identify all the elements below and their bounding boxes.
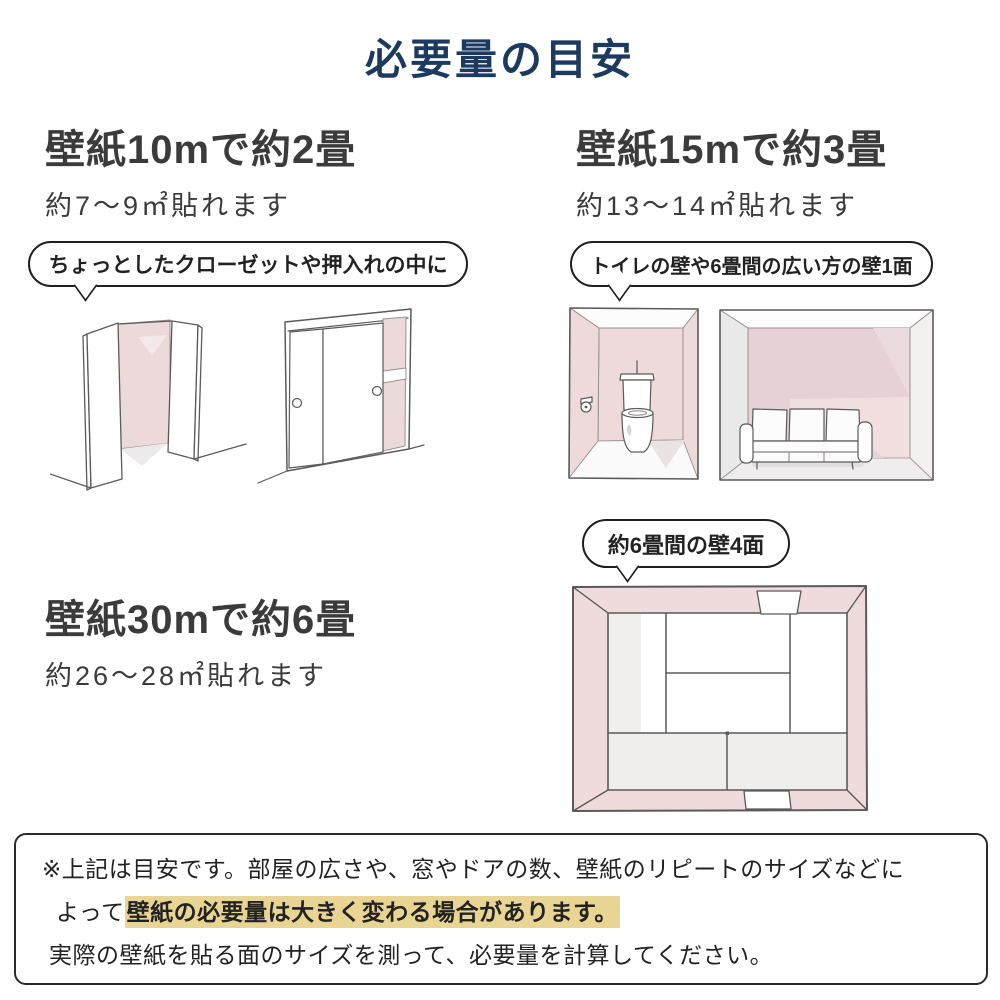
note-line-1: ※上記は目安です。部屋の広さや、窓やドアの数、壁紙のリピートのサイズなどに <box>42 848 966 891</box>
section-10m-subtitle: 約7～9㎡貼れます <box>45 184 356 223</box>
section-15m-bubble: トイレの壁や6畳間の広い方の壁1面 <box>570 241 933 287</box>
section-15m-heading: 壁紙15mで約3畳 <box>576 128 887 172</box>
note-box: ※上記は目安です。部屋の広さや、窓やドアの数、壁紙のリピートのサイズなどに よっ… <box>14 833 988 985</box>
section-30m-bubble: 約6畳間の壁4面 <box>582 519 790 568</box>
page-title: 必要量の目安 <box>0 26 1000 87</box>
section-10m-bubble: ちょっとしたクローゼットや押入れの中に <box>28 241 468 287</box>
note-line-3: 実際の壁紙を貼る面のサイズを測って、必要量を計算してください。 <box>49 934 966 977</box>
toilet-room-sketch <box>565 305 705 485</box>
note-line-2-prefix: よって <box>56 899 125 925</box>
living-room-sofa-sketch <box>715 307 937 485</box>
section-15m-bubble-label: トイレの壁や6畳間の広い方の壁1面 <box>590 250 912 279</box>
section-30m-subtitle: 約26～28㎡貼れます <box>45 654 356 693</box>
section-10m-bubble-label: ちょっとしたクローゼットや押入れの中に <box>49 249 448 279</box>
section-30m-header: 壁紙30mで約6畳 約26～28㎡貼れます <box>45 598 356 693</box>
six-tatami-room-top-view-sketch <box>570 583 870 815</box>
section-10m-header: 壁紙10mで約2畳 約7～9㎡貼れます <box>45 128 356 223</box>
section-10m-heading: 壁紙10mで約2畳 <box>45 128 356 172</box>
wallpaper-quantity-guide: 必要量の目安 壁紙10mで約2畳 約7～9㎡貼れます ちょっとしたクローゼットや… <box>0 0 1000 1000</box>
sliding-door-closet-sketch <box>255 300 425 490</box>
open-closet-sketch <box>50 300 250 495</box>
note-highlight: 壁紙の必要量は大きく変わる場合があります。 <box>125 896 620 928</box>
section-15m-subtitle: 約13～14㎡貼れます <box>576 184 887 223</box>
note-line-2: よって壁紙の必要量は大きく変わる場合があります。 <box>56 891 966 934</box>
section-15m-header: 壁紙15mで約3畳 約13～14㎡貼れます <box>576 128 887 223</box>
section-30m-heading: 壁紙30mで約6畳 <box>45 598 356 642</box>
